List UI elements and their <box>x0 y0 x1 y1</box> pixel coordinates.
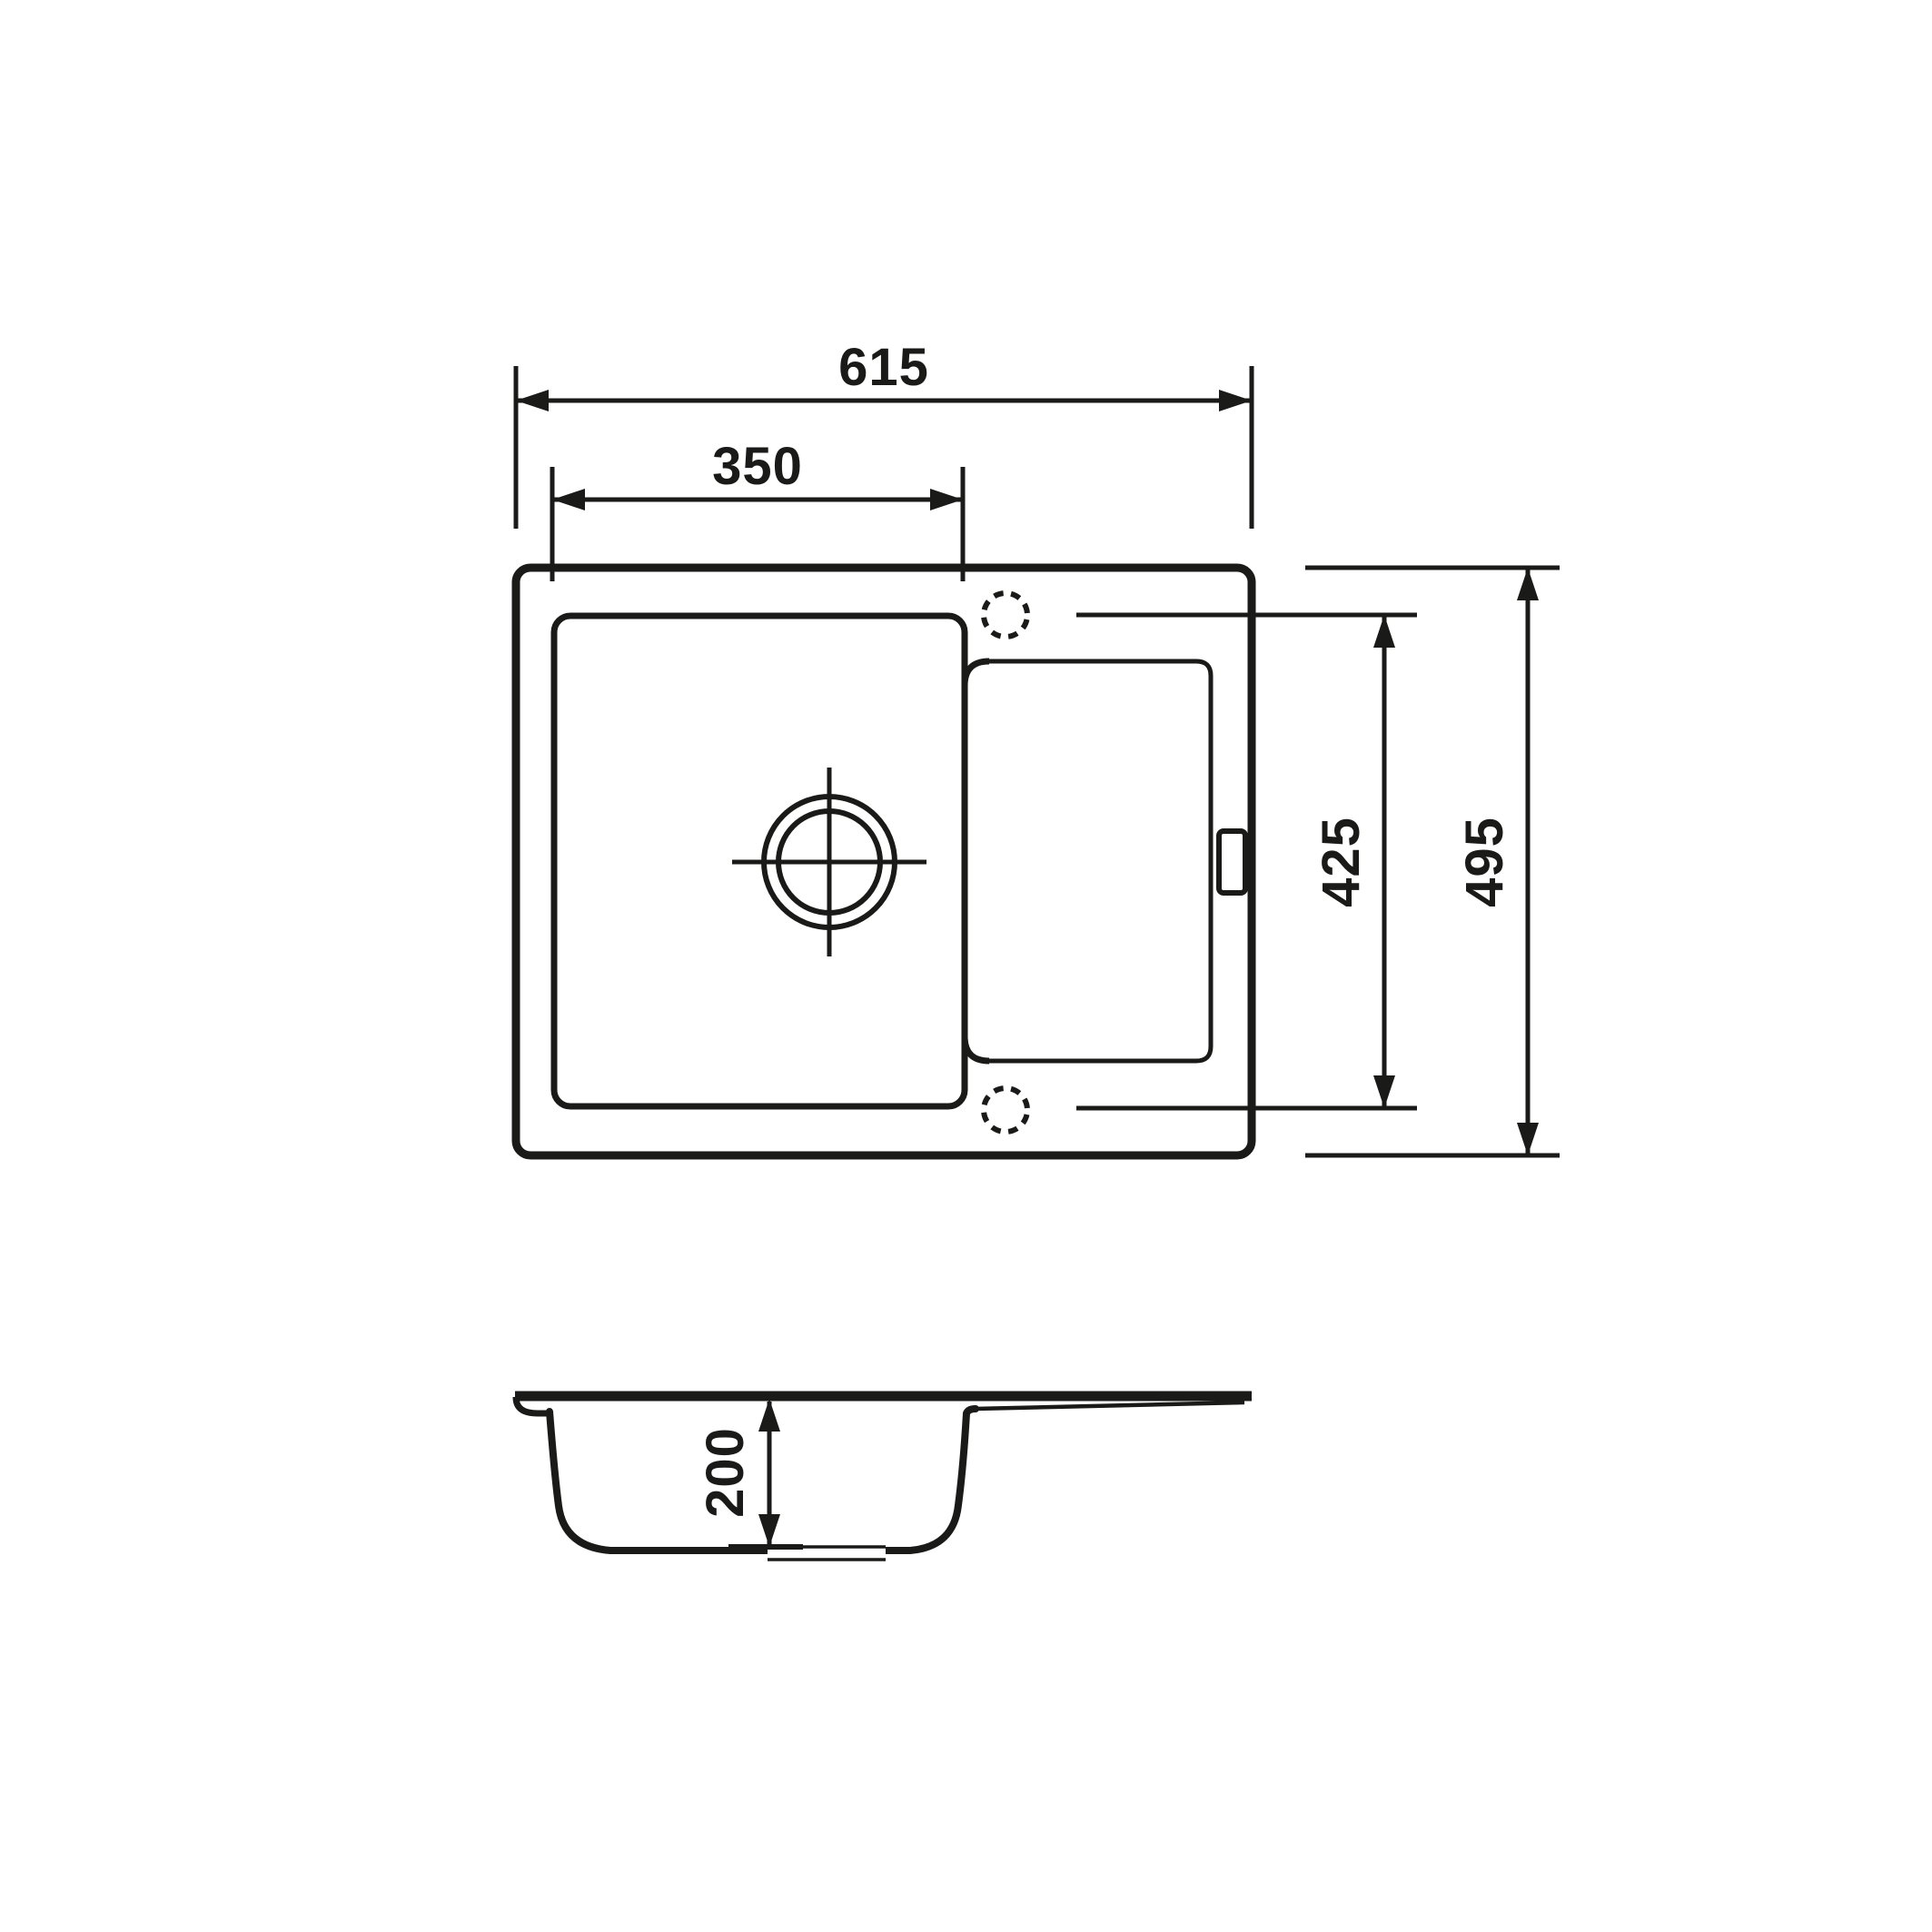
dim-bowl-depth: 200 <box>696 1399 803 1547</box>
tap-hole-top-icon <box>980 590 1032 641</box>
plan-view <box>516 568 1252 1155</box>
plan-dimensions: 615 350 425 495 <box>516 338 1560 1155</box>
drainer-step-bottom <box>965 1036 989 1061</box>
dim-label-tap-hole-span: 425 <box>1312 817 1371 907</box>
tap-hole-bottom-icon <box>980 1085 1032 1136</box>
section-view: 200 <box>515 1396 1252 1560</box>
section-drainer-line <box>975 1402 1244 1409</box>
technical-drawing-page: 615 350 425 495 <box>0 0 1932 1932</box>
dim-label-overall-depth: 495 <box>1455 817 1514 907</box>
drainer-outline <box>965 661 1211 1061</box>
dim-label-overall-width: 615 <box>838 338 929 397</box>
overflow-slot <box>1219 831 1245 893</box>
drainer-step-top <box>965 661 989 686</box>
drain-assembly <box>732 768 926 956</box>
dim-bowl-width: 350 <box>552 437 963 581</box>
dim-label-bowl-depth: 200 <box>696 1427 755 1518</box>
dim-label-bowl-width: 350 <box>712 437 803 496</box>
sink-technical-drawing: 615 350 425 495 <box>0 0 1932 1932</box>
